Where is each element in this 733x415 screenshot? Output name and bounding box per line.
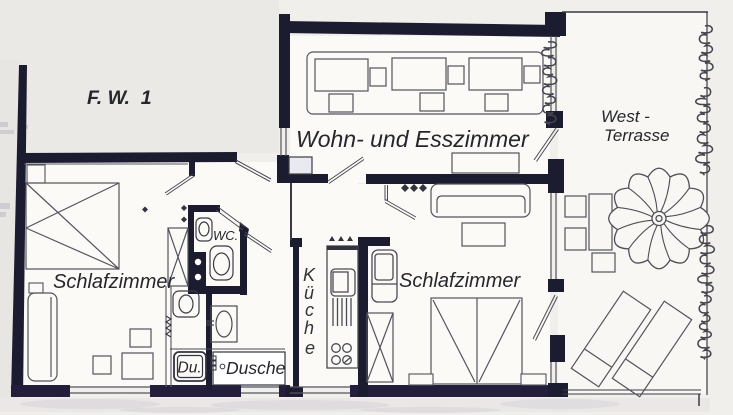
svg-text:e: e [305,338,315,358]
svg-text:Dusche: Dusche [226,358,286,378]
svg-text:Du.: Du. [178,360,202,377]
svg-text:Schlafzimmer: Schlafzimmer [399,270,521,292]
svg-text:h: h [304,318,314,338]
svg-text:Wohn- und Esszimmer: Wohn- und Esszimmer [296,126,530,152]
svg-text:Schlafzimmer: Schlafzimmer [53,271,175,293]
svg-text:Terrasse: Terrasse [604,126,670,145]
svg-text:K: K [303,265,316,285]
svg-text:c: c [305,300,314,320]
svg-text:F. W. 1: F. W. 1 [87,87,152,109]
svg-text:West -: West - [601,107,650,126]
svg-text:WC.: WC. [213,228,238,243]
